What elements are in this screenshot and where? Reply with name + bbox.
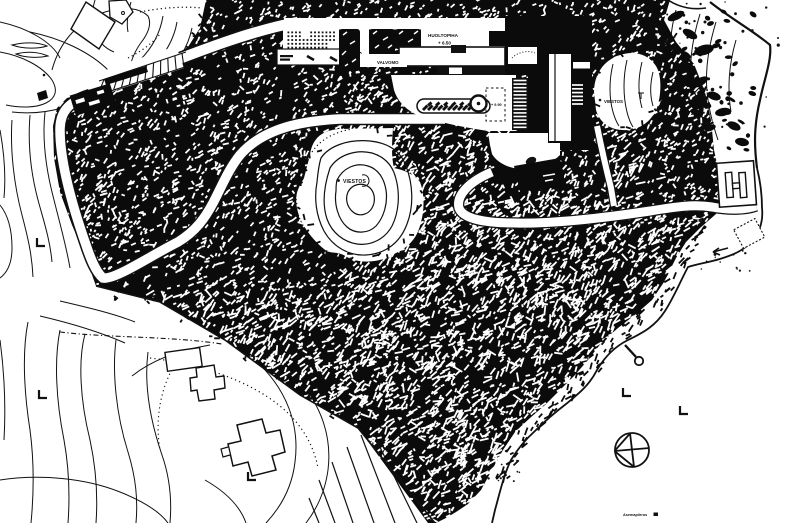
svg-text:VIESTOS: VIESTOS (343, 179, 366, 185)
svg-text:+ 9.90: + 9.90 (491, 103, 502, 107)
svg-text:+ 6.50: + 6.50 (438, 41, 451, 46)
svg-text:Asemapiirros: Asemapiirros (623, 513, 647, 517)
svg-text:HUOLTOPIHA: HUOLTOPIHA (428, 33, 459, 38)
svg-text:VALVOMO: VALVOMO (377, 60, 399, 65)
svg-text:VIESTOS: VIESTOS (604, 99, 623, 104)
